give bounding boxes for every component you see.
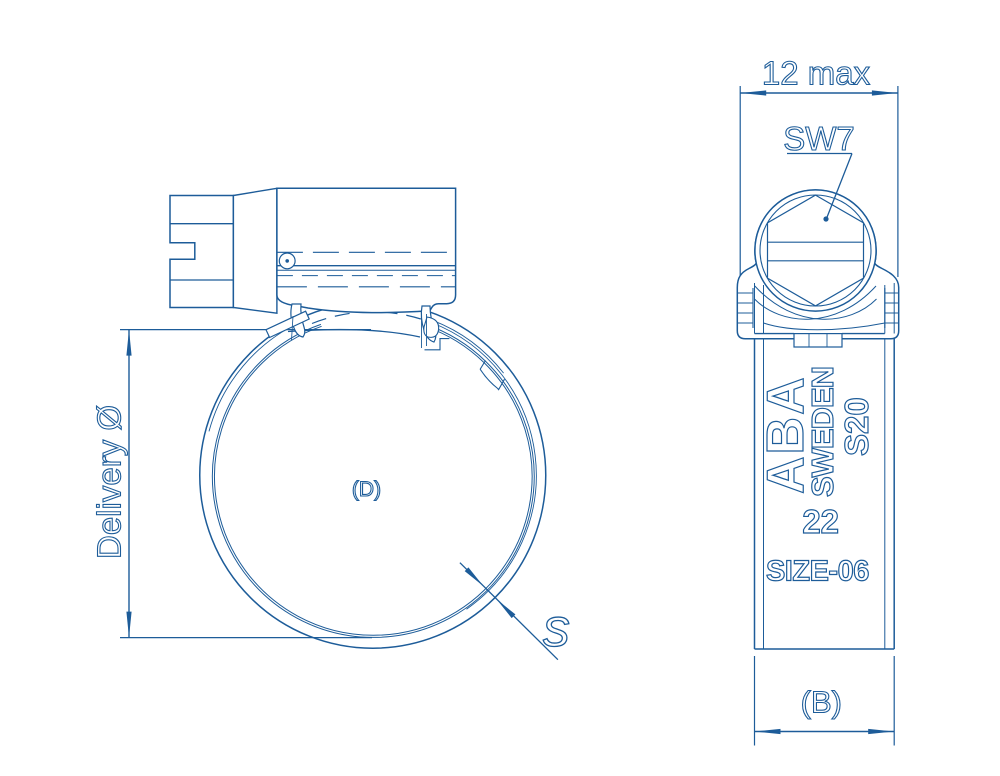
svg-text:12 max: 12 max <box>762 55 871 92</box>
svg-text:S20: S20 <box>838 397 875 456</box>
svg-text:(B): (B) <box>801 685 842 720</box>
svg-text:SIZE-06: SIZE-06 <box>766 556 869 588</box>
svg-text:Delivery Ø: Delivery Ø <box>91 405 128 559</box>
svg-text:SW7: SW7 <box>783 120 855 157</box>
svg-text:SWEDEN: SWEDEN <box>805 367 840 497</box>
svg-text:22: 22 <box>802 503 839 540</box>
svg-text:s: s <box>543 598 570 658</box>
svg-text:(D): (D) <box>352 478 381 501</box>
